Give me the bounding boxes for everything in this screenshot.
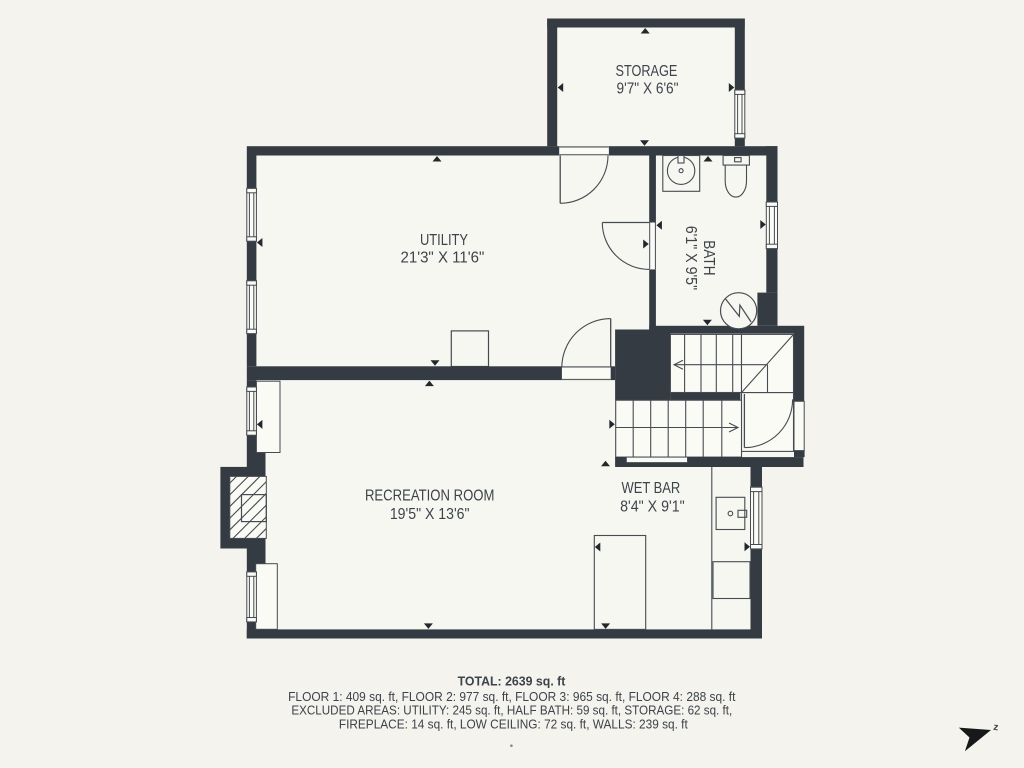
svg-text:UTILITY: UTILITY [420,232,468,249]
svg-text:19'5" X 13'6": 19'5" X 13'6" [390,506,470,523]
svg-text:9'7" X 6'6": 9'7" X 6'6" [617,81,679,98]
svg-text:RECREATION ROOM: RECREATION ROOM [365,488,495,505]
svg-text:TOTAL: 2639 sq. ft: TOTAL: 2639 sq. ft [458,674,567,688]
svg-text:EXCLUDED AREAS: UTILITY: 245 s: EXCLUDED AREAS: UTILITY: 245 sq. ft, HAL… [291,704,732,718]
svg-text:WET BAR: WET BAR [622,480,681,497]
svg-text:FLOOR 1: 409 sq. ft, FLOOR 2:: FLOOR 1: 409 sq. ft, FLOOR 2: 977 sq. ft… [288,690,736,704]
svg-text:FIREPLACE: 14 sq. ft, LOW CEIL: FIREPLACE: 14 sq. ft, LOW CEILING: 72 sq… [339,717,688,731]
svg-text:21'3" X 11'6": 21'3" X 11'6" [401,250,485,267]
svg-text:STORAGE: STORAGE [616,63,678,80]
svg-text:8'4" X 9'1": 8'4" X 9'1" [620,499,685,516]
